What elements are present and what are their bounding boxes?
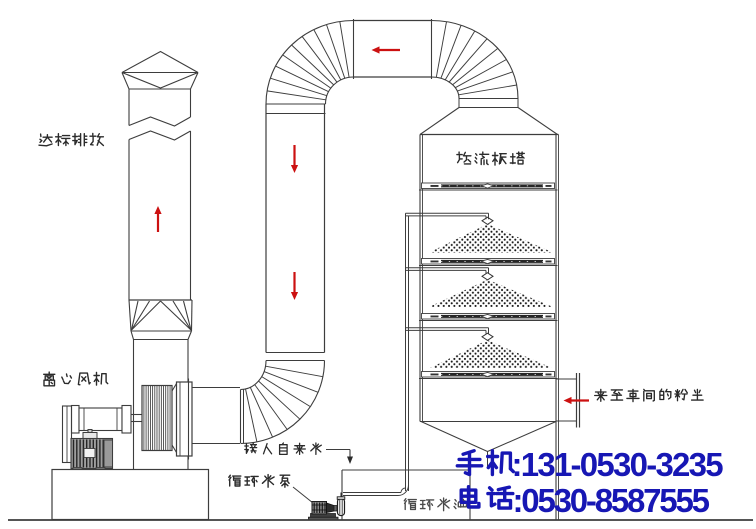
svg-text::0530-8587555: :0530-8587555 [513,482,710,519]
svg-text::131-0530-3235: :131-0530-3235 [512,446,724,483]
